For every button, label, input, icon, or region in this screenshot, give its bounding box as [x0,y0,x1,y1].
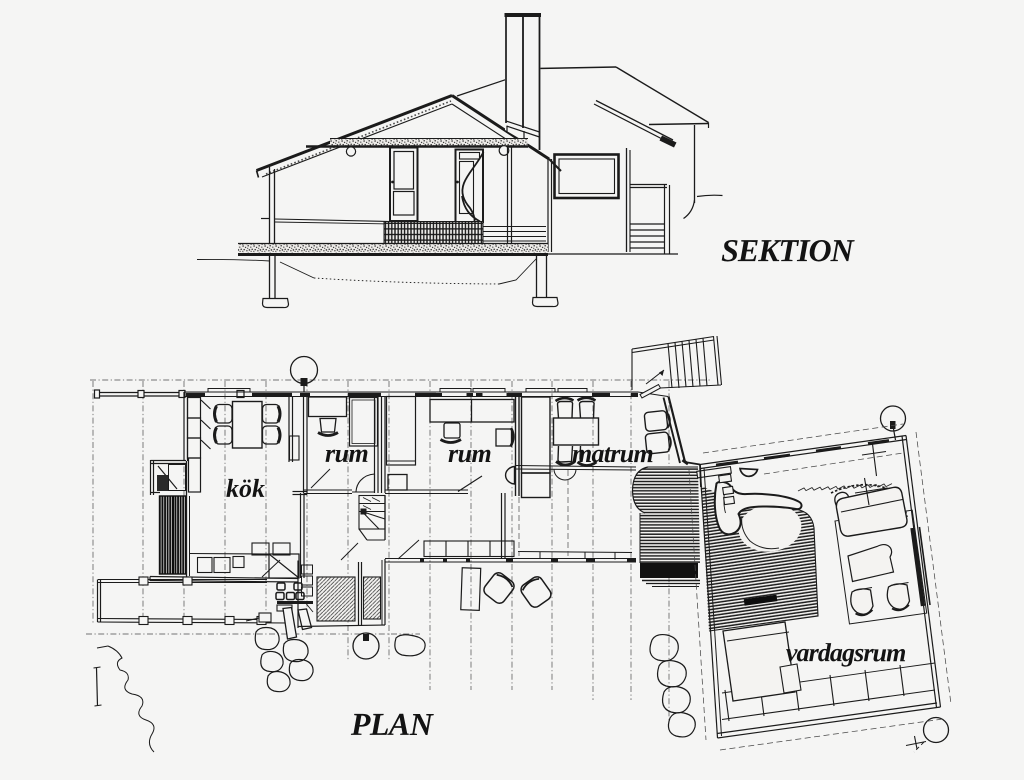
svg-text:PLAN: PLAN [350,706,435,742]
svg-text:rum: rum [325,439,368,468]
svg-text:SEKTION: SEKTION [721,232,856,268]
svg-text:kök: kök [226,474,265,503]
svg-text:matrum: matrum [572,439,653,468]
svg-text:vardagsrum: vardagsrum [786,638,906,667]
svg-text:rum: rum [448,439,491,468]
